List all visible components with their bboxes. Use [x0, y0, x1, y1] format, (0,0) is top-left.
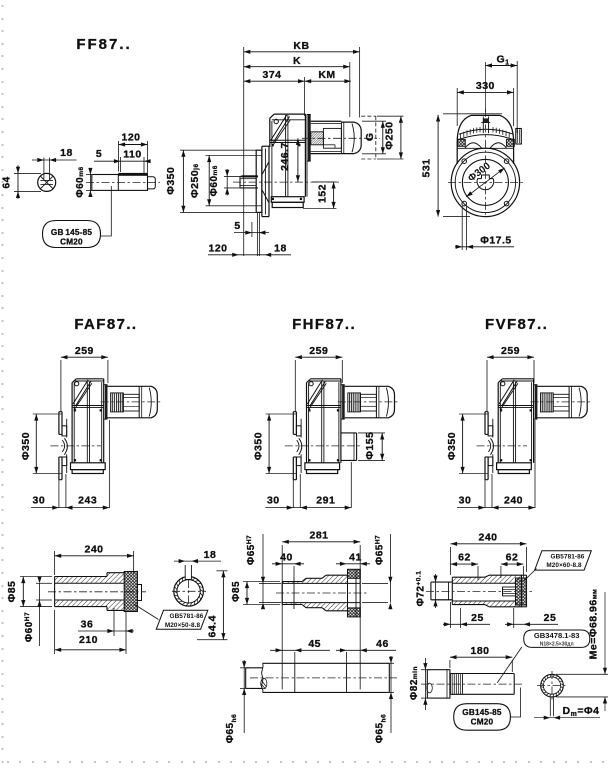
svg-text:Φ155: Φ155: [364, 432, 376, 460]
svg-text:30: 30: [33, 494, 46, 506]
svg-text:Dm=Φ4: Dm=Φ4: [563, 705, 600, 718]
svg-text:FHF87..: FHF87..: [292, 316, 356, 333]
svg-text:CM20: CM20: [471, 718, 494, 727]
svg-text:240: 240: [478, 532, 497, 544]
svg-text:36: 36: [81, 618, 94, 630]
svg-text:152: 152: [317, 184, 329, 203]
svg-text:210: 210: [79, 634, 98, 646]
svg-text:Φ85: Φ85: [6, 581, 18, 603]
svg-text:18: 18: [274, 243, 287, 255]
svg-text:18: 18: [204, 549, 217, 561]
svg-text:Φ350: Φ350: [20, 432, 32, 460]
svg-text:40: 40: [280, 551, 293, 563]
svg-text:30: 30: [459, 494, 472, 506]
svg-text:62: 62: [506, 551, 519, 563]
svg-text:259: 259: [309, 345, 328, 357]
svg-text:K: K: [293, 55, 301, 67]
svg-text:GB145-85: GB145-85: [462, 708, 502, 717]
svg-text:Φ350: Φ350: [253, 432, 265, 460]
svg-text:N18×2.5×30дл: N18×2.5×30дл: [540, 641, 574, 647]
svg-text:G: G: [364, 132, 376, 141]
svg-text:120: 120: [208, 243, 227, 255]
svg-text:259: 259: [501, 345, 520, 357]
svg-text:291: 291: [316, 494, 335, 506]
svg-text:246.7: 246.7: [279, 142, 291, 171]
svg-text:FAF87..: FAF87..: [74, 316, 137, 333]
svg-text:64.4: 64.4: [207, 615, 219, 637]
svg-text:5: 5: [96, 148, 102, 160]
svg-text:18: 18: [60, 147, 73, 159]
svg-text:FF87..: FF87..: [76, 36, 131, 53]
svg-text:30: 30: [267, 494, 280, 506]
svg-text:240: 240: [504, 494, 523, 506]
svg-text:GB 145-85: GB 145-85: [51, 228, 92, 237]
svg-text:GB5781-86: GB5781-86: [170, 613, 204, 620]
svg-text:Φ350: Φ350: [446, 432, 458, 460]
svg-text:KM: KM: [318, 69, 335, 81]
svg-text:25: 25: [471, 612, 484, 624]
svg-text:KB: KB: [293, 40, 309, 52]
svg-text:Φ350: Φ350: [165, 167, 177, 195]
svg-text:GB5781-86: GB5781-86: [551, 554, 585, 561]
svg-text:180: 180: [470, 645, 489, 657]
svg-text:GB3478.1-83: GB3478.1-83: [534, 631, 580, 640]
svg-text:62: 62: [458, 551, 471, 563]
svg-text:374: 374: [262, 69, 281, 81]
svg-text:M20×50-8.8: M20×50-8.8: [165, 622, 201, 629]
svg-text:45: 45: [308, 638, 321, 650]
svg-text:110: 110: [123, 149, 141, 161]
svg-text:259: 259: [75, 345, 94, 357]
svg-text:FVF87..: FVF87..: [485, 316, 548, 333]
svg-text:531: 531: [420, 158, 432, 177]
svg-text:281: 281: [309, 530, 328, 542]
svg-text:240: 240: [84, 543, 103, 555]
svg-text:41: 41: [349, 551, 362, 563]
svg-text:25: 25: [544, 612, 557, 624]
svg-text:Φ250: Φ250: [383, 121, 395, 149]
svg-text:120: 120: [121, 131, 140, 143]
svg-text:CM20: CM20: [60, 237, 83, 246]
svg-text:M20×60-8.8: M20×60-8.8: [546, 562, 582, 569]
svg-text:5: 5: [234, 220, 240, 232]
svg-text:46: 46: [376, 638, 389, 650]
svg-text:Φ17.5: Φ17.5: [480, 235, 512, 247]
svg-text:243: 243: [78, 494, 97, 506]
svg-text:Φ85: Φ85: [231, 581, 242, 602]
